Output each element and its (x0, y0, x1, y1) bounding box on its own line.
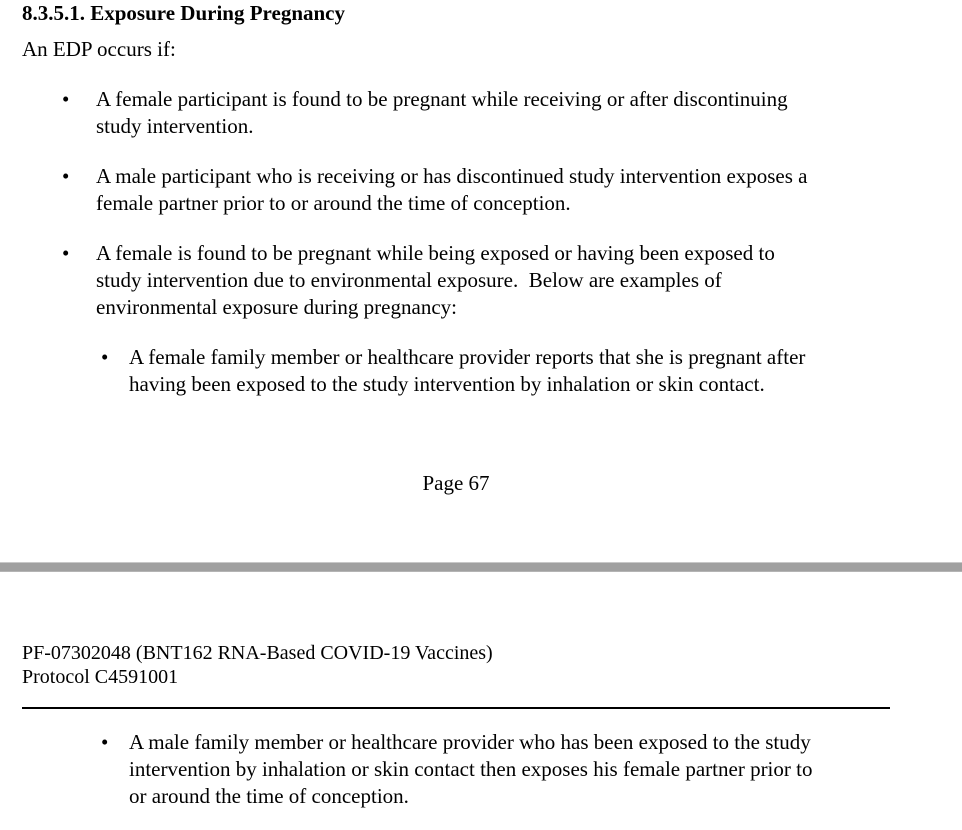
bullet-text: A male participant who is receiving or h… (96, 163, 922, 217)
sub-bullet-item: • A female family member or healthcare p… (0, 344, 962, 398)
bullet-marker: • (101, 344, 108, 371)
bullet-marker: • (62, 86, 69, 113)
bullet-text: A female participant is found to be preg… (96, 86, 922, 140)
bullet-text: A male family member or healthcare provi… (129, 729, 922, 810)
page-separator-bar (0, 562, 962, 572)
running-header: PF-07302048 (BNT162 RNA-Based COVID-19 V… (22, 641, 493, 689)
pdf-document-page: 8.3.5.1. Exposure During Pregnancy An ED… (0, 0, 962, 830)
bullet-item: • A male participant who is receiving or… (0, 163, 962, 217)
bullet-text: A female family member or healthcare pro… (129, 344, 922, 398)
section-heading: 8.3.5.1. Exposure During Pregnancy (22, 0, 345, 27)
bullet-marker: • (62, 163, 69, 190)
bullet-text: A female is found to be pregnant while b… (96, 240, 922, 321)
bullet-marker: • (62, 240, 69, 267)
running-header-line1: PF-07302048 (BNT162 RNA-Based COVID-19 V… (22, 641, 493, 665)
sub-bullet-item: • A male family member or healthcare pro… (0, 729, 962, 810)
bullet-item: • A female is found to be pregnant while… (0, 240, 962, 321)
bullet-marker: • (101, 729, 108, 756)
header-rule (22, 707, 890, 709)
page-number: Page 67 (22, 470, 890, 497)
intro-text: An EDP occurs if: (22, 36, 176, 63)
running-header-line2: Protocol C4591001 (22, 665, 493, 689)
bullet-item: • A female participant is found to be pr… (0, 86, 962, 140)
